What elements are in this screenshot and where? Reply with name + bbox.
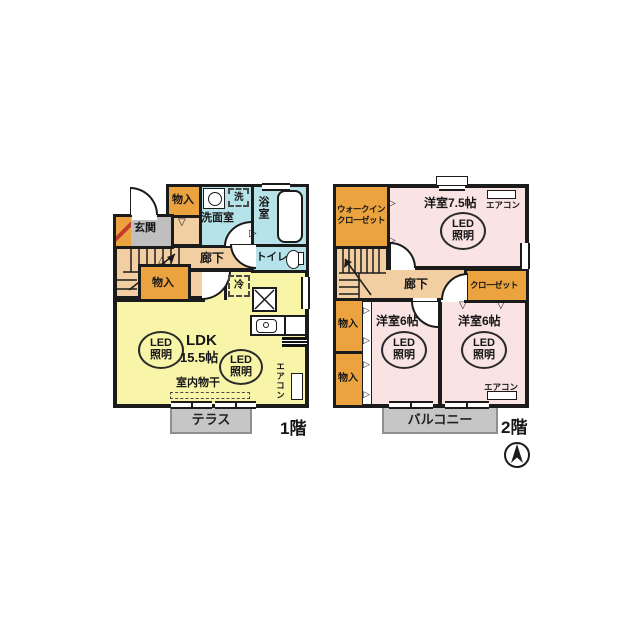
kitchen-counter-divider	[284, 316, 286, 335]
ldk-name-label: LDK	[186, 333, 217, 348]
toilet-tank-icon	[298, 252, 304, 265]
led-line2: 照明	[150, 350, 172, 362]
closet-fold-icon: ▽	[497, 301, 505, 311]
bedroom75-label: 洋室7.5帖	[424, 197, 477, 209]
closet-fold-icon: ▽	[459, 301, 467, 311]
washroom-label: 洗面室	[201, 213, 234, 224]
storage2-fold-icon: ▷	[363, 336, 370, 345]
indoor-drying-rail	[170, 392, 250, 399]
bedroom75-top-window-box	[436, 176, 468, 186]
wic-door-fold-icon: ▷	[388, 199, 396, 209]
led-light-2f-75: LED 照明	[440, 212, 486, 250]
led-line2: 照明	[452, 231, 474, 243]
bathroom-window	[262, 183, 290, 191]
aircon-1f-unit	[291, 373, 303, 400]
ldk-size-label: 15.5帖	[180, 351, 218, 364]
led-light-2f-6r: LED 照明	[461, 331, 507, 369]
storage2-lower-label: 物入	[338, 374, 358, 384]
walkin-closet-label-line2: クローゼット	[337, 216, 385, 225]
storage-top-label: 物入	[172, 195, 194, 206]
entrance-door-arc	[130, 187, 158, 215]
floor-hatch-x-icon	[252, 287, 277, 312]
closet-label: クローゼット	[470, 281, 518, 290]
aircon-75-label: エアコン	[486, 201, 520, 210]
led-light-1f-b: LED 照明	[219, 349, 263, 385]
aircon-1f-label: エアコン	[276, 362, 285, 400]
fridge-label: 冷	[234, 281, 244, 291]
storage2-fold-icon: ▷	[363, 306, 370, 315]
hallway2-label: 廊下	[404, 278, 428, 290]
floor2-label: 2階	[501, 419, 527, 436]
bathtub	[277, 190, 303, 243]
indoor-drying-label: 室内物干	[176, 378, 220, 389]
bedroom75-side-window	[520, 243, 530, 269]
led-light-2f-6l: LED 照明	[381, 331, 427, 369]
bathroom-label: 浴室	[257, 196, 268, 220]
compass-north-icon	[502, 440, 532, 470]
kitchen-stove	[282, 337, 307, 347]
window-tick	[235, 401, 237, 409]
shoe-cabinet	[116, 217, 131, 246]
bathroom-door-fold-icon: ▷	[249, 229, 257, 239]
bedroom6-right-label: 洋室6帖	[458, 315, 501, 327]
entrance-label: 玄関	[134, 223, 156, 234]
storage2-fold-icon: ▷	[363, 360, 370, 369]
aircon-6r-label: エアコン	[484, 383, 518, 392]
washbasin-bowl-icon	[208, 192, 222, 206]
toilet-label: トイレ	[256, 252, 288, 263]
window-tick	[191, 401, 193, 409]
kitchen-faucet-icon	[263, 322, 269, 328]
floor1-label: 1階	[280, 420, 306, 437]
storage-top-fold-icon: ▽	[178, 218, 186, 228]
wall-between-bedrooms6	[438, 302, 442, 404]
led-line2: 照明	[473, 350, 495, 362]
ldk-side-window	[301, 277, 310, 309]
stairs-2f	[337, 247, 386, 302]
window-tick	[466, 401, 468, 409]
floorplan-image: テラス 物入 洗 洗面室 浴室 ▷ トイレ	[0, 0, 640, 640]
aircon-75-unit	[487, 190, 516, 199]
balcony-label: バルコニー	[408, 413, 473, 426]
led-line2: 照明	[393, 350, 415, 362]
aircon-6r-unit	[487, 391, 517, 400]
washer-label: 洗	[234, 193, 244, 203]
led-line2: 照明	[230, 367, 252, 379]
led-light-1f-a: LED 照明	[138, 331, 184, 369]
storage2-upper-label: 物入	[338, 320, 358, 330]
storage-bottom-fold-icon: △	[158, 256, 166, 266]
storage2-fold-icon: ▷	[363, 390, 370, 399]
bedroom6-left-label: 洋室6帖	[376, 315, 419, 327]
window-tick	[410, 401, 412, 409]
storage-bottom-label: 物入	[152, 278, 174, 289]
walkin-closet-label-line1: ウォークイン	[337, 205, 385, 214]
terrace-label: テラス	[192, 413, 231, 426]
hallway1-label: 廊下	[200, 252, 224, 264]
